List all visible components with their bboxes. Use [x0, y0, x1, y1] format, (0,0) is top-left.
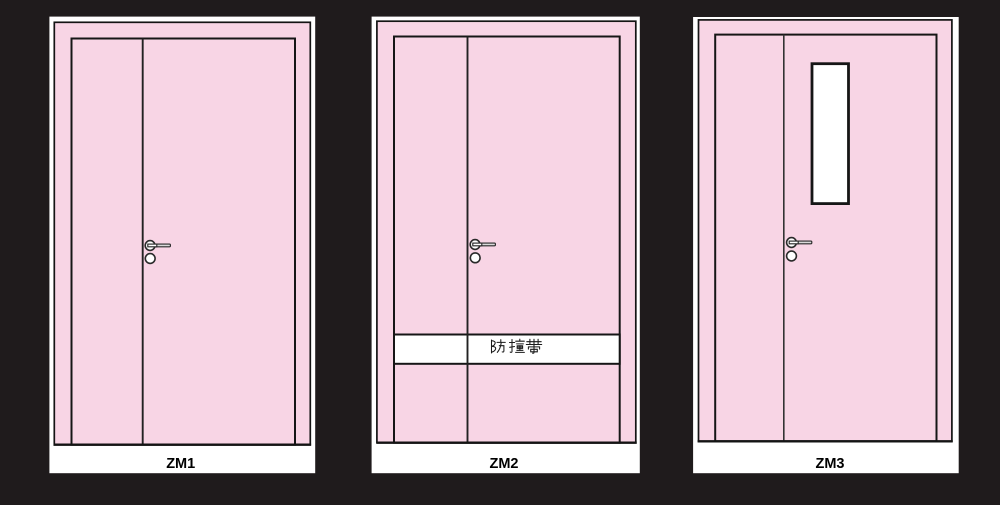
- svg-text:ZM3: ZM3: [816, 456, 845, 472]
- svg-text:ZM2: ZM2: [490, 456, 519, 472]
- svg-text:ZM1: ZM1: [166, 456, 195, 472]
